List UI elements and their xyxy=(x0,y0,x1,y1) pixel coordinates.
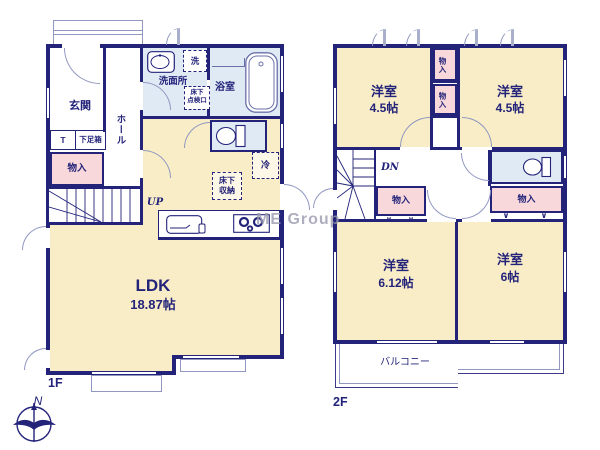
closet-mark: ∨ xyxy=(538,211,550,221)
casement-window-icon xyxy=(464,29,478,46)
storage-1f-label: 物入 xyxy=(50,163,104,174)
casement-window-icon xyxy=(500,29,514,46)
wall xyxy=(46,222,143,225)
hall-label: ホール xyxy=(114,102,125,158)
window xyxy=(490,340,524,344)
underfloor-access-line2: 点検口 xyxy=(187,97,207,104)
door-opening xyxy=(46,228,50,248)
wall xyxy=(333,44,567,48)
casement-window-icon xyxy=(372,29,386,46)
closet-mark: ∨ xyxy=(383,215,395,225)
exterior-door-arc xyxy=(284,184,310,210)
toilet-icon xyxy=(215,124,249,148)
balcony-label: バルコニー xyxy=(365,357,445,369)
underfloor-storage-line1: 床下 xyxy=(219,176,235,185)
room-sw-size: 6.12帖 xyxy=(364,276,428,290)
kitchen-sink-icon xyxy=(166,215,208,234)
exterior-door-arc xyxy=(24,348,46,370)
washer-label: 洗 xyxy=(183,56,207,66)
bathtub-icon xyxy=(245,52,278,113)
room-nw-label: 洋室 xyxy=(352,84,416,100)
room-ne-size: 4.5帖 xyxy=(478,101,542,115)
bath-counter-line xyxy=(212,58,245,67)
door-opening xyxy=(427,219,456,222)
exterior-door-arc xyxy=(22,226,46,250)
door-opening xyxy=(462,147,492,150)
underfloor-storage-line2: 収納 xyxy=(219,186,235,195)
casement-window-icon xyxy=(406,29,420,46)
room-se-label: 洋室 xyxy=(478,252,542,268)
window xyxy=(280,56,284,92)
closet-mark: ∨ xyxy=(405,215,417,225)
porch-step-line xyxy=(53,34,143,35)
washroom-label: 洗面所 xyxy=(144,76,202,87)
window xyxy=(280,248,284,284)
terrace-outline xyxy=(91,375,162,392)
wall xyxy=(103,44,106,132)
window xyxy=(280,124,284,148)
window xyxy=(280,298,284,334)
window xyxy=(563,60,567,96)
bathroom-label: 浴室 xyxy=(203,82,247,94)
entrance-label: 玄関 xyxy=(56,100,104,113)
window xyxy=(563,252,567,292)
wall xyxy=(430,44,433,150)
closet-right-label: 物入 xyxy=(490,194,563,205)
room-nw-size: 4.5帖 xyxy=(352,101,416,115)
casement-window-icon xyxy=(166,28,180,45)
floor-plan-canvas: 玄関 ホール T 下足箱 物入 UP 洗面所 洗 床下 点検口 浴室 冷 床下 … xyxy=(0,0,600,450)
toilet-icon xyxy=(522,156,554,178)
room-ne-label: 洋室 xyxy=(478,84,542,100)
porch-step-line xyxy=(53,30,143,31)
stairs-dn-label: DN xyxy=(377,162,403,174)
wall xyxy=(140,44,143,82)
closet-top1-label: 物入 xyxy=(438,53,447,77)
wall xyxy=(430,115,460,118)
stairs-1f xyxy=(49,189,140,222)
wall xyxy=(455,219,458,344)
compass-north-label: N xyxy=(34,394,43,408)
door-opening xyxy=(333,190,337,210)
wall xyxy=(207,44,210,80)
wall xyxy=(143,116,284,119)
closet-mark: ∨ xyxy=(500,211,512,221)
closet-top2-label: 物入 xyxy=(438,88,447,112)
wall xyxy=(457,44,460,150)
stairs-up-label: UP xyxy=(142,197,168,209)
terrace-outline xyxy=(180,359,246,372)
wall xyxy=(430,81,460,83)
shoe-cabinet-label: 下足箱 xyxy=(75,135,106,144)
ldk-label: LDK xyxy=(98,276,208,296)
stairs-2f xyxy=(337,150,374,219)
balcony-inner-line xyxy=(458,344,560,370)
doormat-label: T xyxy=(50,135,76,145)
door-opening xyxy=(462,219,491,222)
ldk-size-label: 18.87帖 xyxy=(98,297,208,313)
window xyxy=(377,340,437,344)
underfloor-access-line1: 床下 xyxy=(191,89,204,96)
window xyxy=(333,88,337,124)
compass-icon: N xyxy=(10,393,60,447)
window xyxy=(183,355,239,359)
room-se-size: 6帖 xyxy=(478,270,542,284)
window xyxy=(92,371,156,375)
closet-left-label: 物入 xyxy=(376,195,426,206)
room-ldk xyxy=(143,355,172,371)
watermark: ME Group xyxy=(256,211,340,229)
door-opening xyxy=(46,350,50,368)
window xyxy=(563,156,567,178)
refrigerator-label: 冷 xyxy=(252,160,279,171)
floor1-label: 1F xyxy=(48,376,78,391)
underfloor-storage-label: 床下 収納 xyxy=(212,176,242,195)
washbasin-icon xyxy=(147,51,175,73)
door-opening xyxy=(400,147,430,150)
exterior-door-arc xyxy=(313,188,333,208)
room-sw-label: 洋室 xyxy=(364,258,428,274)
window xyxy=(333,252,337,292)
wall xyxy=(333,340,567,344)
window xyxy=(46,88,50,118)
floor2-label: 2F xyxy=(333,395,363,410)
